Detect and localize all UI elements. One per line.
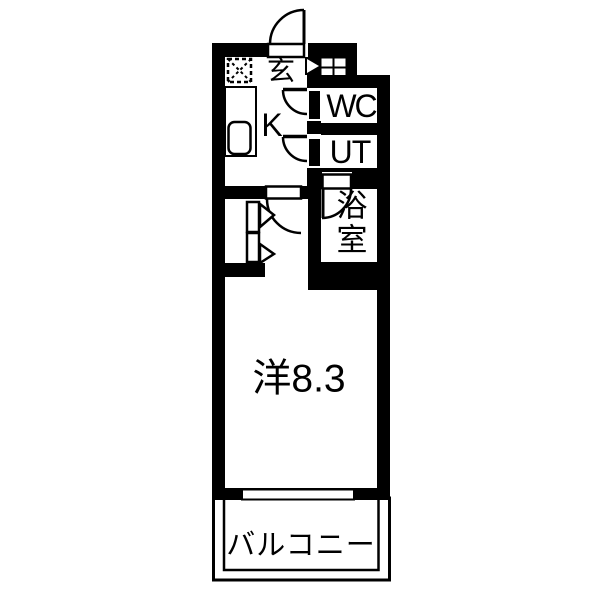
closet-fold-arrow-icon [260, 244, 274, 263]
shoe-cabinet-cell [322, 69, 333, 76]
wall-bath-bottom [308, 262, 390, 290]
shoe-cabinet-cell [322, 59, 333, 67]
shoe-cabinet-cell [335, 59, 346, 67]
ut-door-leaf [309, 139, 320, 166]
wc-door-arc [283, 90, 307, 114]
ut-door-swing [283, 137, 320, 167]
wall-top-left [225, 43, 268, 57]
wall-right [377, 88, 390, 500]
bathroom-label: 浴室 [334, 189, 365, 257]
kitchen-label: K [261, 109, 282, 141]
closet-door-panel [247, 233, 259, 262]
balcony-label: バルコニー [226, 532, 375, 561]
wc-label: WC [326, 90, 375, 122]
wc-door-leaf [309, 91, 320, 119]
kitchen-fixtures [225, 59, 256, 156]
room-door-swing [266, 187, 301, 234]
balcony-window-overlay [242, 490, 354, 500]
closet-folding-doors [247, 202, 274, 263]
genkan-label: 玄 [267, 57, 295, 85]
refrigerator-space-cross [228, 59, 251, 82]
wall-top-right [308, 43, 357, 57]
wall-closet-bottom [212, 263, 265, 277]
refrigerator-space-icon [228, 59, 251, 82]
floor-plan: 玄 K WC UT 浴室 洋8.3 バルコニー [0, 0, 600, 600]
refrigerator-space-cross [228, 59, 251, 82]
wall-wc-block-top [307, 75, 390, 88]
wall-kitchen-room-stub [301, 186, 321, 199]
bathroom-door-leaf [323, 175, 352, 189]
entrance-door-arc [270, 10, 304, 44]
shoe-cabinet-cell [335, 69, 346, 76]
room-door-leaf [266, 187, 301, 199]
entrance-door-swing [268, 10, 304, 57]
floor-plan-drawing [0, 0, 600, 600]
wall-kitchen-room-left [212, 186, 265, 199]
ut-door-arc [283, 137, 307, 161]
western-room-label: 洋8.3 [252, 360, 345, 399]
kitchen-sink [229, 122, 251, 154]
wc-door-swing [283, 90, 320, 120]
utility-label: UT [330, 136, 371, 168]
closet-door-panel [247, 202, 259, 232]
